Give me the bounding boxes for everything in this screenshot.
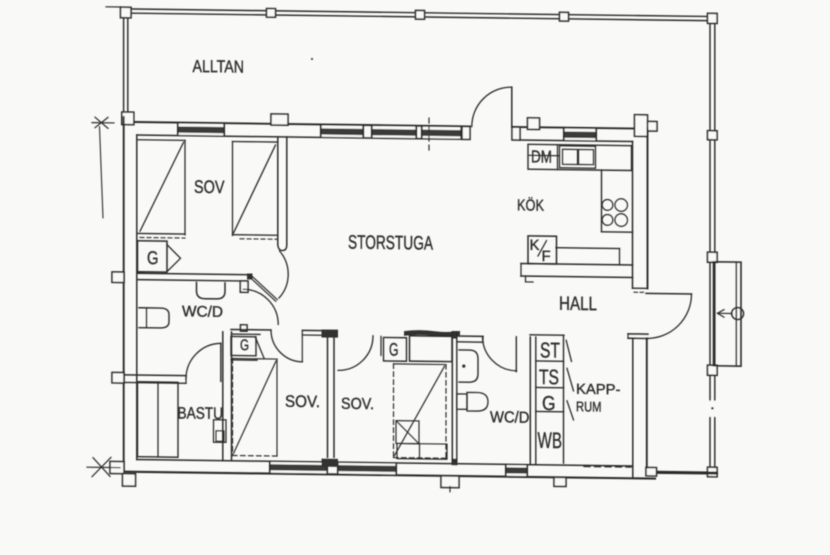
svg-text:K: K xyxy=(530,237,540,254)
svg-text:F: F xyxy=(542,248,551,265)
svg-text:BASTU: BASTU xyxy=(178,403,224,423)
svg-text:ST: ST xyxy=(540,338,560,362)
svg-text:G: G xyxy=(147,247,159,268)
svg-text:G: G xyxy=(240,337,249,354)
svg-text:WC/D: WC/D xyxy=(182,303,223,321)
svg-text:SOV: SOV xyxy=(194,177,225,197)
svg-text:TS: TS xyxy=(539,366,559,389)
svg-text:SOV.: SOV. xyxy=(341,396,374,413)
svg-text:WB: WB xyxy=(538,428,563,453)
svg-text:G: G xyxy=(542,393,556,415)
svg-text:RUM: RUM xyxy=(576,398,602,414)
svg-text:STORSTUGA: STORSTUGA xyxy=(348,231,433,254)
svg-text:WC/D: WC/D xyxy=(490,409,530,427)
svg-text:SOV.: SOV. xyxy=(285,392,320,411)
svg-text:KÖK: KÖK xyxy=(517,196,544,214)
svg-text:KAPP-: KAPP- xyxy=(576,382,621,399)
svg-text:HALL: HALL xyxy=(559,293,597,315)
svg-text:G: G xyxy=(389,340,399,360)
svg-text:ALLTAN: ALLTAN xyxy=(193,56,245,77)
svg-text:DM: DM xyxy=(531,146,552,166)
